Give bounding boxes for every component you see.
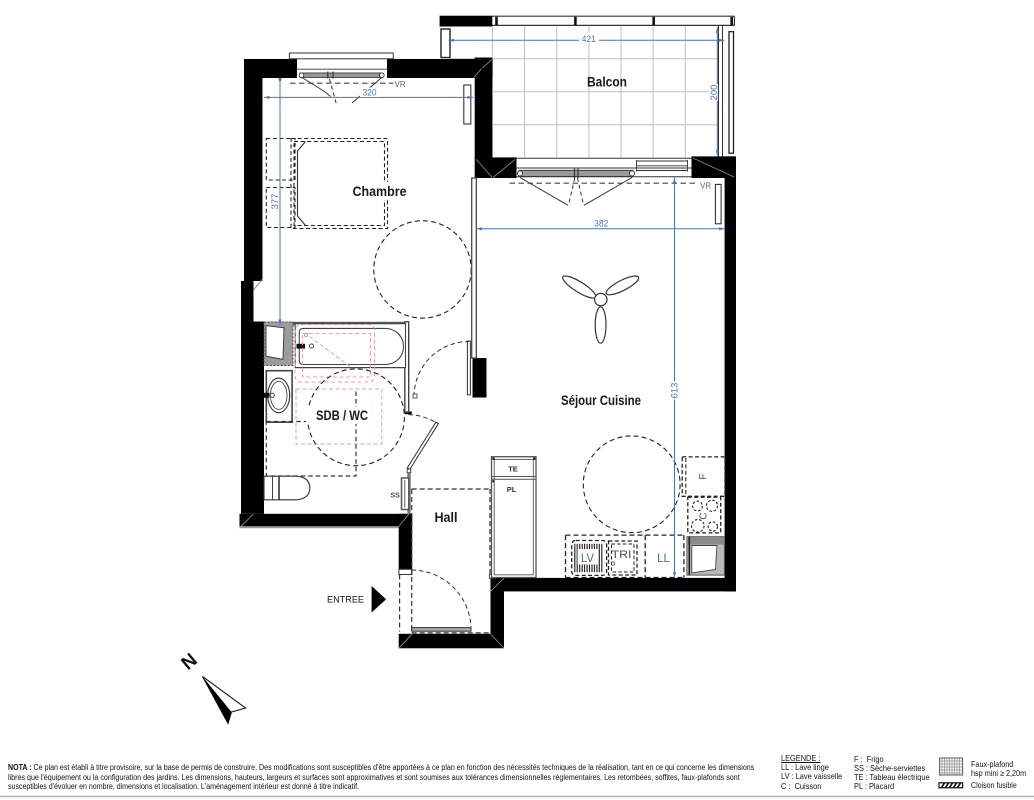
- svg-text:Balcon: Balcon: [587, 75, 627, 90]
- svg-text:613: 613: [668, 383, 679, 399]
- svg-text:SDB / WC: SDB / WC: [316, 408, 368, 423]
- svg-text:TE: TE: [508, 464, 518, 473]
- svg-text:TRI: TRI: [612, 549, 632, 561]
- svg-text:200: 200: [708, 85, 719, 101]
- svg-text:VR: VR: [395, 80, 406, 89]
- svg-text:Séjour Cuisine: Séjour Cuisine: [561, 393, 641, 408]
- svg-text:382: 382: [594, 217, 608, 228]
- svg-text:LV: LV: [581, 553, 595, 565]
- svg-text:SS: SS: [391, 493, 401, 500]
- svg-text:320: 320: [363, 87, 377, 98]
- svg-text:LL: LL: [657, 553, 670, 565]
- svg-text:421: 421: [582, 33, 596, 44]
- svg-text:F: F: [698, 473, 709, 479]
- svg-text:PL: PL: [507, 485, 517, 494]
- svg-text:Hall: Hall: [435, 510, 458, 525]
- svg-text:377: 377: [269, 194, 280, 210]
- svg-text:C: C: [699, 512, 710, 519]
- svg-text:Chambre: Chambre: [353, 184, 407, 199]
- svg-text:VR: VR: [700, 181, 711, 190]
- svg-text:ENTREE: ENTREE: [327, 594, 364, 605]
